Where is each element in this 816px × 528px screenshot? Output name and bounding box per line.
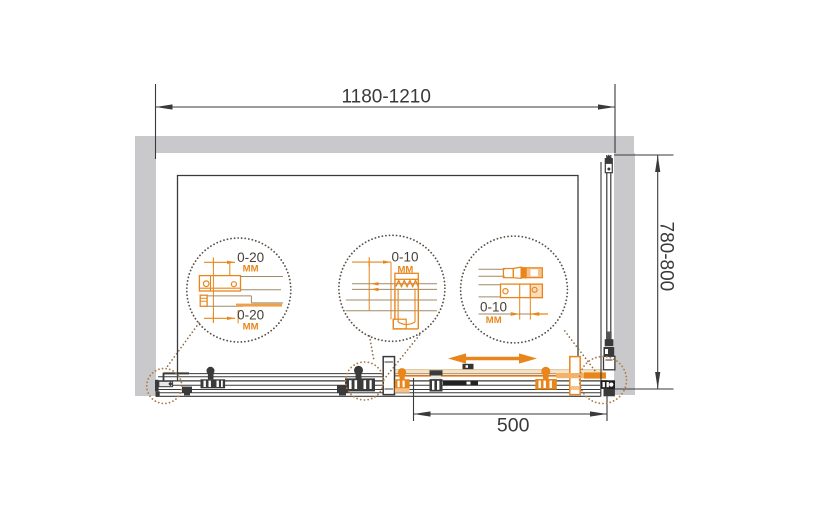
svg-text:500: 500	[497, 415, 530, 437]
svg-text:MM: MM	[486, 315, 502, 326]
svg-text:1180-1210: 1180-1210	[341, 87, 430, 108]
svg-text:0-20: 0-20	[237, 308, 264, 323]
svg-text:0-10: 0-10	[391, 250, 418, 265]
svg-text:MM: MM	[243, 321, 259, 332]
svg-text:780-800: 780-800	[656, 222, 677, 292]
svg-text:MM: MM	[243, 263, 259, 274]
svg-text:0-10: 0-10	[480, 300, 507, 315]
